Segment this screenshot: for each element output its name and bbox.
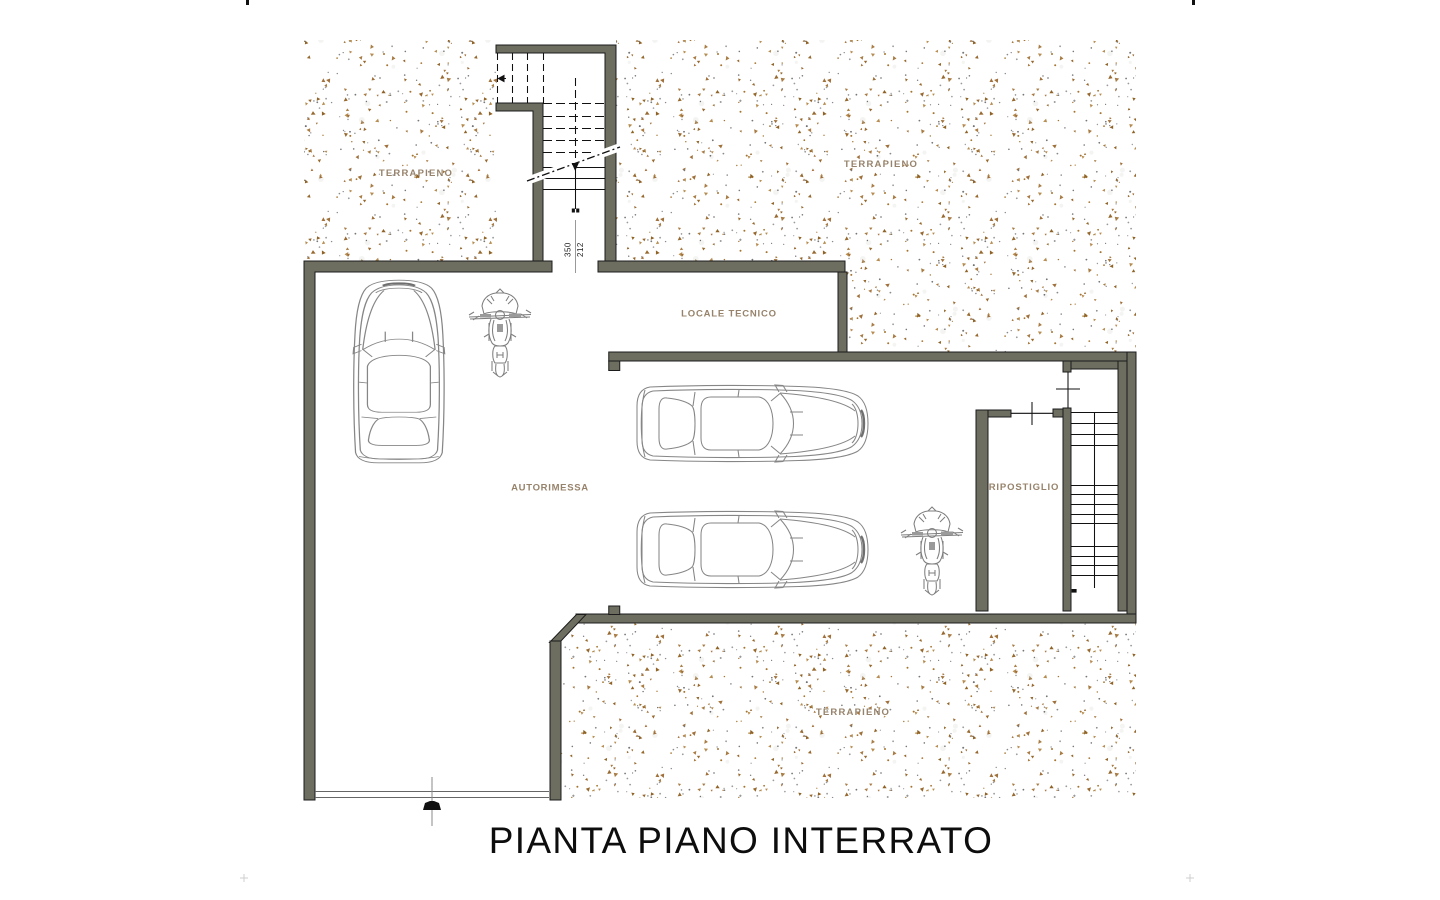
svg-text:TERRAPIENO: TERRAPIENO — [379, 168, 453, 179]
svg-text:RIPOSTIGLIO: RIPOSTIGLIO — [989, 482, 1060, 493]
svg-text:350: 350 — [564, 242, 573, 257]
svg-text:TERRAPIENO: TERRAPIENO — [816, 707, 890, 718]
svg-text:TERRAPIENO: TERRAPIENO — [844, 159, 918, 170]
svg-text:LOCALE TECNICO: LOCALE TECNICO — [681, 309, 777, 320]
svg-text:212: 212 — [576, 242, 585, 257]
svg-text:PIANTA PIANO INTERRATO: PIANTA PIANO INTERRATO — [489, 820, 994, 861]
svg-text:AUTORIMESSA: AUTORIMESSA — [511, 483, 589, 494]
